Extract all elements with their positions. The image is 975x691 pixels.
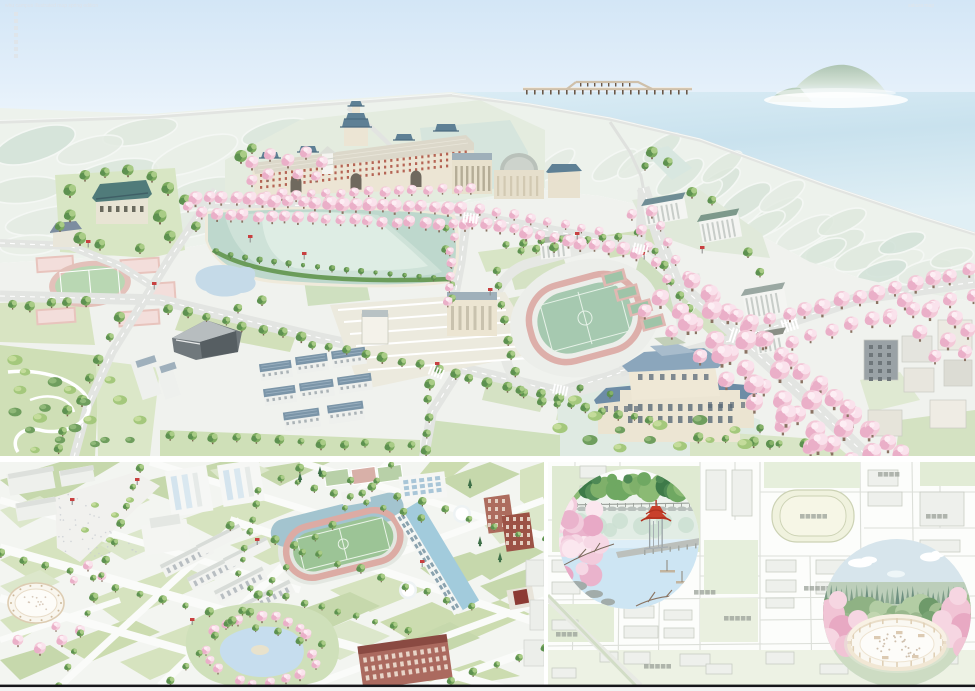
svg-text:sakura map: sakura map [908,3,934,9]
svg-text:whu campus illustrated map spr: whu campus illustrated map spring editio… [5,3,98,9]
